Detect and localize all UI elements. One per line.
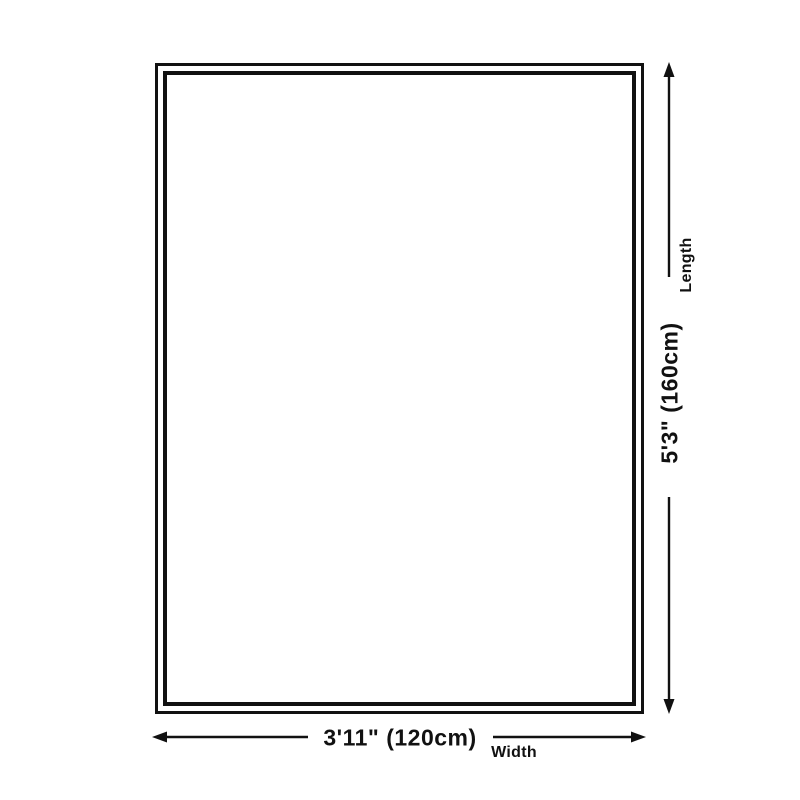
dimension-diagram: 5'3" (160cm) Length 3'11" (120cm) Width — [0, 0, 800, 800]
arrow-left-icon — [152, 732, 167, 743]
product-outline-inner-border — [163, 71, 636, 706]
length-label: Length — [678, 237, 696, 292]
product-outline — [155, 63, 644, 714]
arrow-right-icon — [631, 732, 646, 743]
arrow-up-icon — [664, 62, 675, 77]
arrow-down-icon — [664, 699, 675, 714]
width-value: 3'11" (120cm) — [323, 725, 476, 752]
length-value: 5'3" (160cm) — [657, 322, 684, 463]
width-label: Width — [491, 744, 537, 762]
